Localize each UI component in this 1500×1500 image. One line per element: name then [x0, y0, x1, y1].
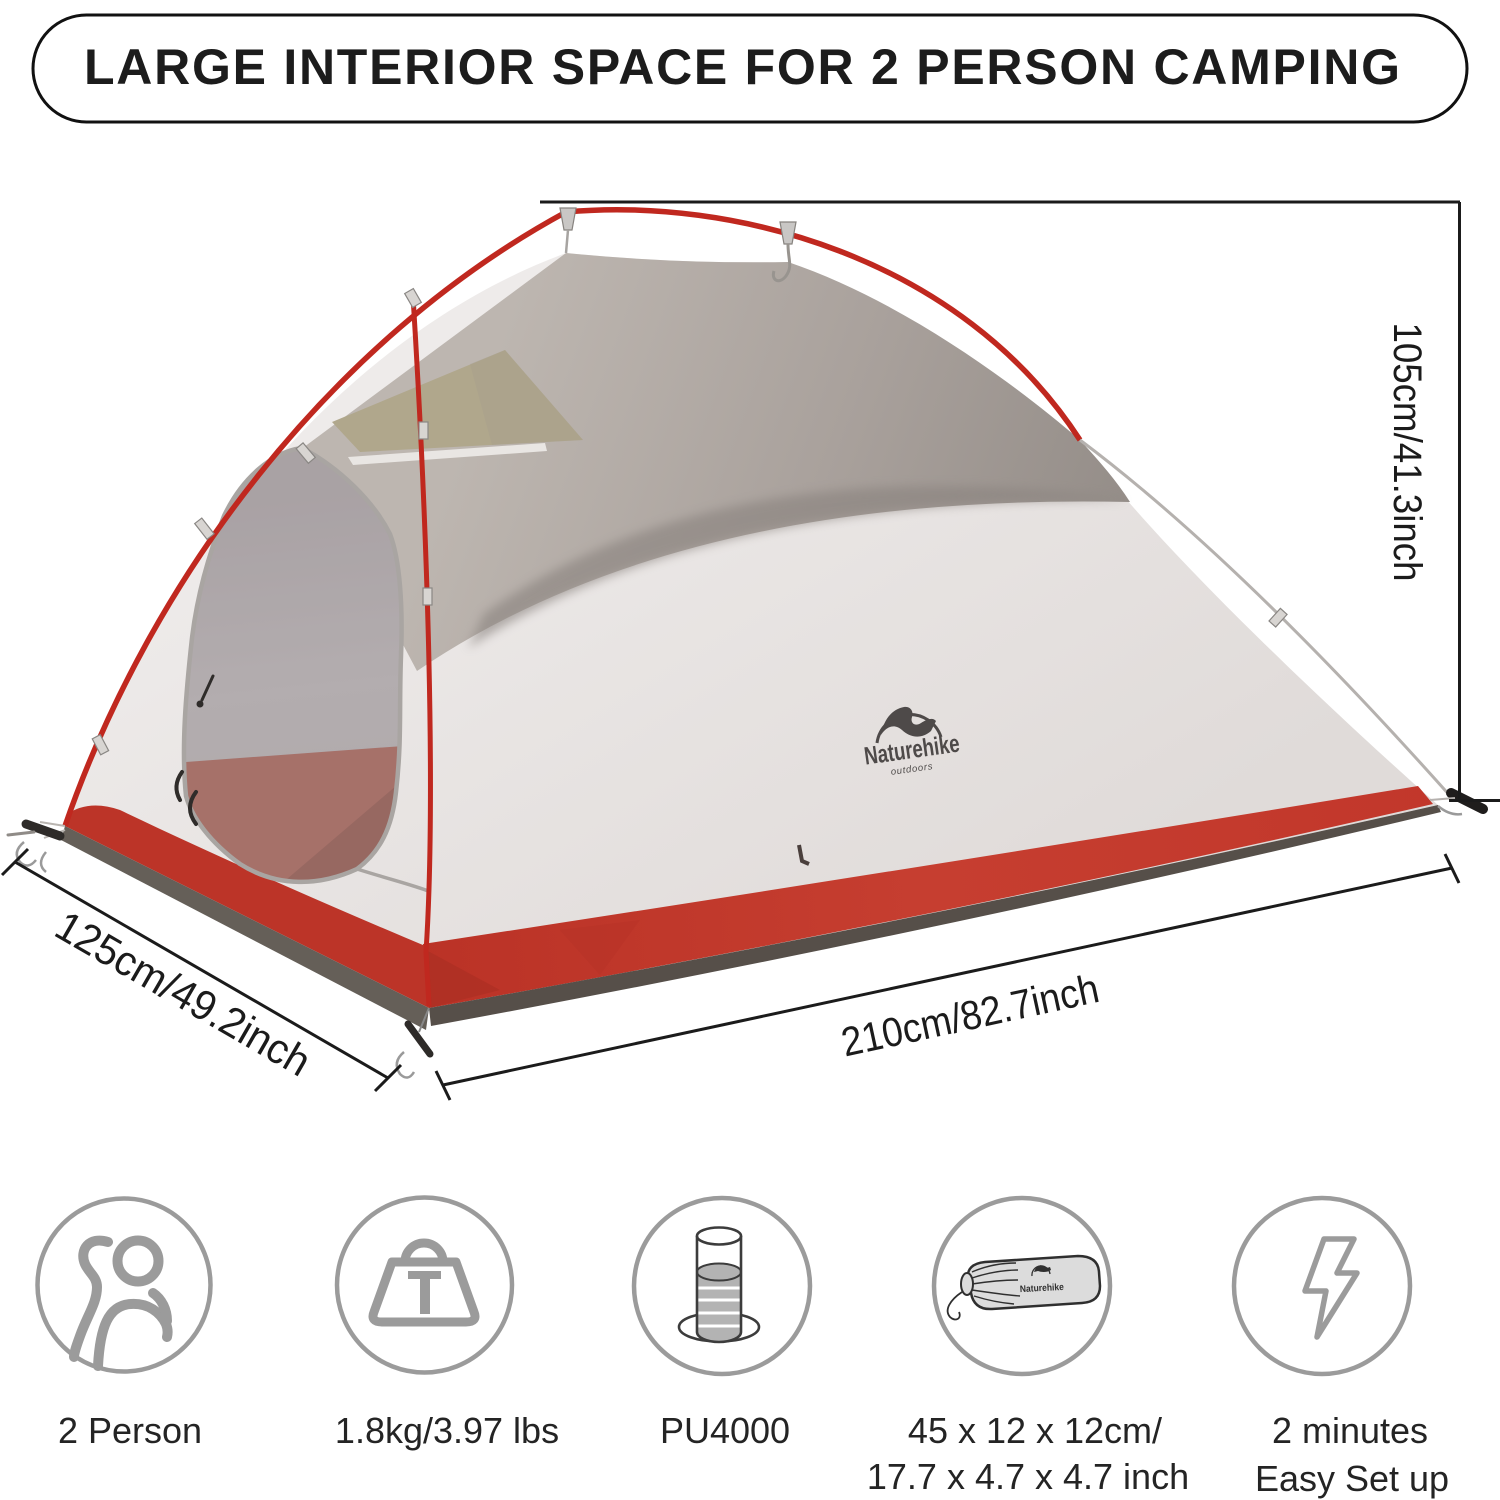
svg-text:210cm/82.7inch: 210cm/82.7inch [837, 965, 1103, 1065]
svg-text:2 Person: 2 Person [58, 1410, 202, 1451]
svg-text:PU4000: PU4000 [660, 1410, 790, 1451]
svg-text:Naturehike: Naturehike [1020, 1282, 1065, 1295]
svg-text:45 x 12 x 12cm/: 45 x 12 x 12cm/ [908, 1410, 1162, 1451]
svg-text:105cm/41.3inch: 105cm/41.3inch [1385, 323, 1429, 582]
svg-text:2 minutes: 2 minutes [1272, 1410, 1428, 1451]
svg-text:Easy Set up: Easy Set up [1255, 1458, 1449, 1499]
svg-text:LARGE INTERIOR SPACE FOR 2 PER: LARGE INTERIOR SPACE FOR 2 PERSON CAMPIN… [84, 39, 1400, 95]
svg-text:17.7 x 4.7 x 4.7 inch: 17.7 x 4.7 x 4.7 inch [867, 1456, 1189, 1497]
svg-text:1.8kg/3.97 lbs: 1.8kg/3.97 lbs [335, 1410, 559, 1451]
